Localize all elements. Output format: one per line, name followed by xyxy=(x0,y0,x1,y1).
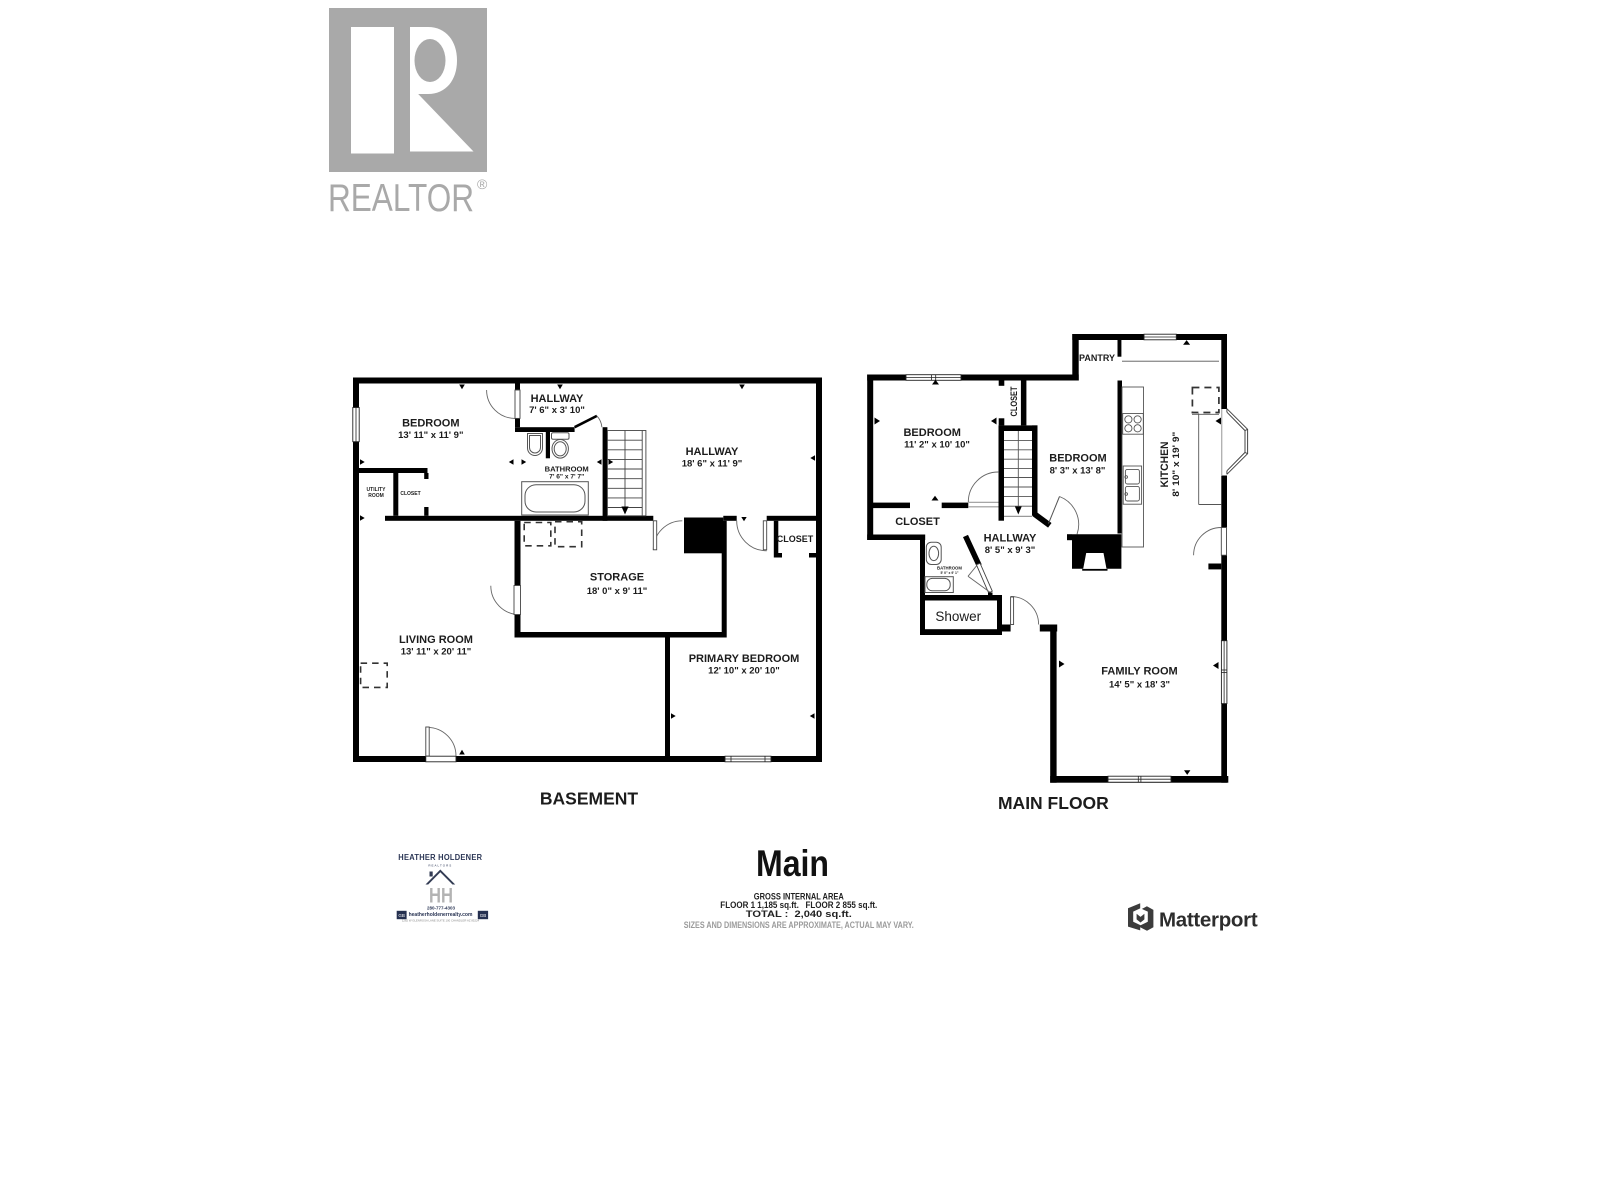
svg-text:7' 6" x 3' 10": 7' 6" x 3' 10" xyxy=(529,405,585,416)
svg-text:18' 6" x 11' 9": 18' 6" x 11' 9" xyxy=(682,459,743,470)
svg-text:CLOSET: CLOSET xyxy=(895,516,940,528)
svg-text:8' 3" x 13' 8": 8' 3" x 13' 8" xyxy=(1050,466,1106,477)
svg-text:8' 5" x 9' 3": 8' 5" x 9' 3" xyxy=(985,545,1036,556)
svg-text:Main: Main xyxy=(756,843,829,884)
svg-text:HEATHER HOLDENER: HEATHER HOLDENER xyxy=(398,853,482,862)
svg-text:BATHROOM: BATHROOM xyxy=(937,566,962,571)
svg-text:BEDROOM: BEDROOM xyxy=(1049,453,1106,465)
svg-text:BATHROOM: BATHROOM xyxy=(545,464,589,473)
svg-text:14' 5" x 18' 3": 14' 5" x 18' 3" xyxy=(1109,680,1170,691)
svg-text:8' 10" x 19' 9": 8' 10" x 19' 9" xyxy=(1171,432,1182,497)
svg-text:PANTRY: PANTRY xyxy=(1079,353,1115,363)
svg-text:HH: HH xyxy=(429,885,453,908)
svg-text:280-777-4303: 280-777-4303 xyxy=(427,906,456,911)
svg-text:GB: GB xyxy=(480,913,487,918)
svg-text:LIVING ROOM: LIVING ROOM xyxy=(399,634,473,646)
svg-text:13' 11" x 20' 11": 13' 11" x 20' 11" xyxy=(401,647,472,658)
svg-text:REALTOR: REALTOR xyxy=(328,177,474,220)
svg-text:KITCHEN: KITCHEN xyxy=(1159,441,1171,487)
svg-text:SIZES AND DIMENSIONS ARE APPRO: SIZES AND DIMENSIONS ARE APPROXIMATE, AC… xyxy=(684,920,914,931)
svg-text:STORAGE: STORAGE xyxy=(590,572,644,584)
svg-text:5' 0" x 9' 1": 5' 0" x 9' 1" xyxy=(940,571,958,575)
svg-text:PRIMARY BEDROOM: PRIMARY BEDROOM xyxy=(689,653,800,665)
svg-text:1282 W GLENROSA LANE SUITE 100: 1282 W GLENROSA LANE SUITE 100 CHANDLER … xyxy=(402,919,480,923)
svg-text:Matterport: Matterport xyxy=(1159,909,1258,932)
svg-text:ROOM: ROOM xyxy=(368,493,384,499)
svg-text:BEDROOM: BEDROOM xyxy=(402,418,459,430)
svg-text:BASEMENT: BASEMENT xyxy=(540,789,639,809)
svg-text:®: ® xyxy=(477,176,488,192)
svg-text:Shower: Shower xyxy=(935,609,981,624)
svg-text:GB: GB xyxy=(398,913,405,918)
svg-text:CLOSET: CLOSET xyxy=(1009,386,1019,416)
svg-text:HALLWAY: HALLWAY xyxy=(686,446,739,458)
svg-text:12' 10" x 20' 10": 12' 10" x 20' 10" xyxy=(708,666,780,677)
svg-text:HALLWAY: HALLWAY xyxy=(531,393,584,405)
svg-text:CLOSET: CLOSET xyxy=(400,491,420,497)
svg-text:HALLWAY: HALLWAY xyxy=(984,533,1037,545)
svg-text:13' 11" x 11' 9": 13' 11" x 11' 9" xyxy=(398,430,463,441)
svg-text:MAIN FLOOR: MAIN FLOOR xyxy=(998,793,1109,813)
svg-text:FAMILY ROOM: FAMILY ROOM xyxy=(1101,666,1177,678)
svg-text:11' 2" x 10' 10": 11' 2" x 10' 10" xyxy=(904,440,970,451)
svg-text:TOTAL : 2,040 sq.ft.: TOTAL : 2,040 sq.ft. xyxy=(746,909,852,920)
svg-text:CLOSET: CLOSET xyxy=(777,534,814,544)
svg-text:7' 6" x 7' 7": 7' 6" x 7' 7" xyxy=(549,474,584,481)
svg-text:REALTORS: REALTORS xyxy=(428,864,452,868)
svg-text:heatherholdenerrealty.com: heatherholdenerrealty.com xyxy=(409,912,473,918)
svg-text:BEDROOM: BEDROOM xyxy=(903,427,960,439)
svg-text:18' 0" x 9' 11": 18' 0" x 9' 11" xyxy=(587,586,648,597)
